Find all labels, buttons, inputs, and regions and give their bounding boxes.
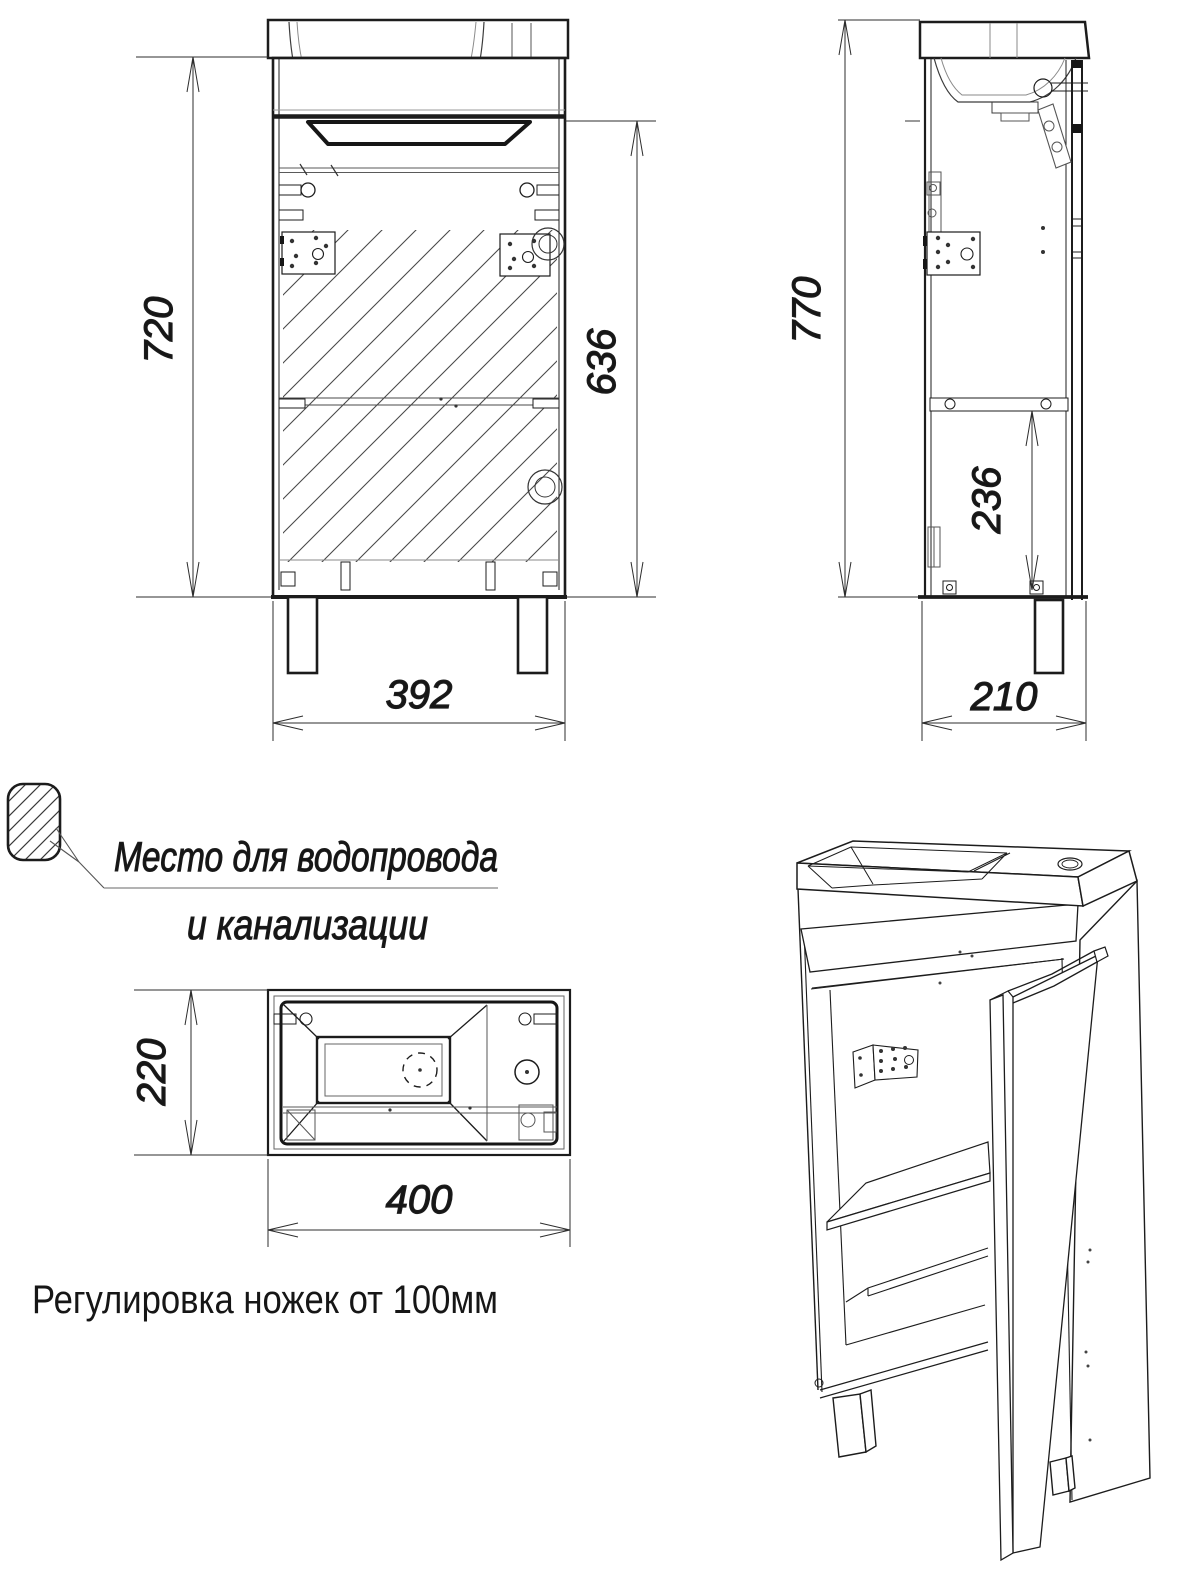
side-leg: [1035, 600, 1063, 673]
side-inner-dimension: [1026, 411, 1038, 590]
side-door-edge: [1072, 60, 1082, 600]
front-inner-height-label: 636: [580, 328, 624, 395]
iso-view: [797, 841, 1150, 1560]
technical-drawing-sheet: 720 636 392: [0, 0, 1200, 1570]
plumbing-zone-hatch: [283, 230, 557, 562]
top-width-label: 400: [386, 1178, 453, 1222]
side-inner-label: 236: [965, 466, 1009, 534]
side-sink-top: [920, 22, 1089, 58]
side-depth-label: 210: [970, 675, 1038, 719]
note-text: Регулировка ножек от 100мм: [32, 1278, 498, 1322]
front-view: 720 636 392: [136, 20, 656, 741]
hatch-swatch-icon: [8, 784, 60, 860]
side-view: 770 236 210: [785, 20, 1089, 741]
top-view-outline: [268, 990, 570, 1155]
side-height-dimension: [838, 20, 920, 597]
legend-line1: Место для водопровода: [114, 833, 498, 880]
front-leg-left: [288, 597, 317, 673]
mounting-plate-left: [280, 232, 335, 274]
front-leg-right: [518, 597, 547, 673]
door-handle-recess: [308, 122, 530, 144]
cabinet-drawing: 720 636 392: [0, 0, 1200, 1570]
legend-line2: и канализации: [187, 901, 428, 948]
side-mounting-plate: [923, 232, 980, 275]
legend: Место для водопровода и канализации: [8, 784, 498, 948]
iso-mounting-plate: [853, 1045, 918, 1088]
iso-sink-top: [797, 841, 1137, 906]
top-view: 220 400: [130, 990, 570, 1247]
front-width-label: 392: [386, 673, 453, 717]
side-height-label: 770: [785, 277, 829, 344]
front-height-label: 720: [137, 297, 181, 364]
mounting-plate-right: [500, 234, 550, 276]
front-sink-top: [268, 20, 568, 58]
top-depth-label: 220: [130, 1039, 174, 1107]
